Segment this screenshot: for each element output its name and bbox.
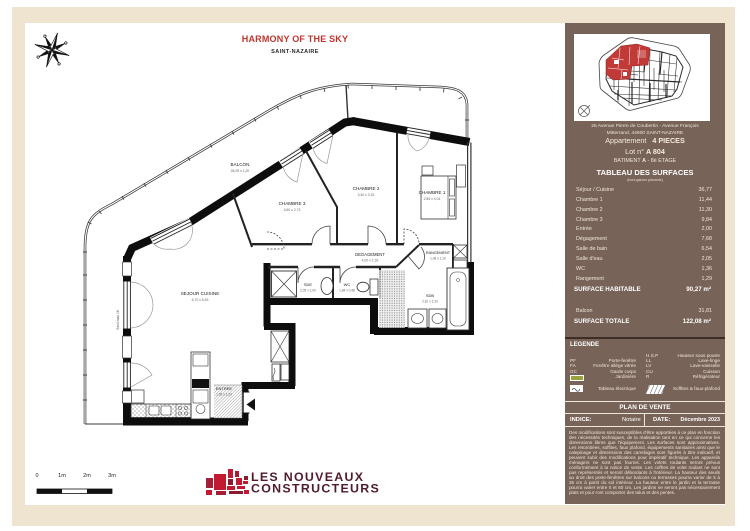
svg-text:2,05 x 1,00: 2,05 x 1,00 — [300, 289, 316, 293]
svg-text:6,70 x 5,49: 6,70 x 5,49 — [192, 298, 209, 302]
svg-text:0: 0 — [35, 473, 38, 479]
svg-text:CHAMBRE 3: CHAMBRE 3 — [279, 201, 306, 206]
svg-text:1,65 x 1,24: 1,65 x 1,24 — [216, 393, 232, 397]
svg-text:3,40 x 3,32: 3,40 x 3,32 — [358, 193, 375, 197]
svg-text:SDB: SDB — [426, 293, 435, 298]
svg-text:26,09 x 1,20: 26,09 x 1,20 — [231, 169, 250, 173]
svg-text:1m: 1m — [58, 473, 66, 479]
svg-text:3,60 x 2,73: 3,60 x 2,73 — [284, 208, 301, 212]
svg-text:ENTREE: ENTREE — [216, 386, 233, 391]
svg-text:SDE: SDE — [304, 282, 313, 287]
svg-text:CHAMBRE 2: CHAMBRE 2 — [353, 186, 380, 191]
svg-text:CHAMBRE 1: CHAMBRE 1 — [419, 190, 446, 195]
svg-text:2,85 x 4,01: 2,85 x 4,01 — [424, 197, 441, 201]
svg-text:WC: WC — [344, 282, 351, 287]
svg-text:2m: 2m — [83, 473, 91, 479]
svg-text:CONSTRUCTEURS: CONSTRUCTEURS — [251, 482, 380, 496]
svg-text:1,84 x 0,98: 1,84 x 0,98 — [339, 289, 355, 293]
svg-text:4,00 x 1,92: 4,00 x 1,92 — [362, 259, 379, 263]
svg-text:1,08 x 1,20: 1,08 x 1,20 — [430, 257, 446, 261]
svg-text:BALCON: BALCON — [231, 162, 250, 167]
svg-text:RANGEMENT: RANGEMENT — [426, 251, 451, 255]
svg-text:SEJOUR CUISINE: SEJOUR CUISINE — [181, 291, 220, 296]
svg-text:2,81 x 2,33: 2,81 x 2,33 — [422, 300, 438, 304]
svg-text:Seuil max 18: Seuil max 18 — [116, 310, 120, 330]
svg-text:3m: 3m — [108, 473, 116, 479]
svg-text:DEGAGEMENT: DEGAGEMENT — [355, 252, 385, 257]
